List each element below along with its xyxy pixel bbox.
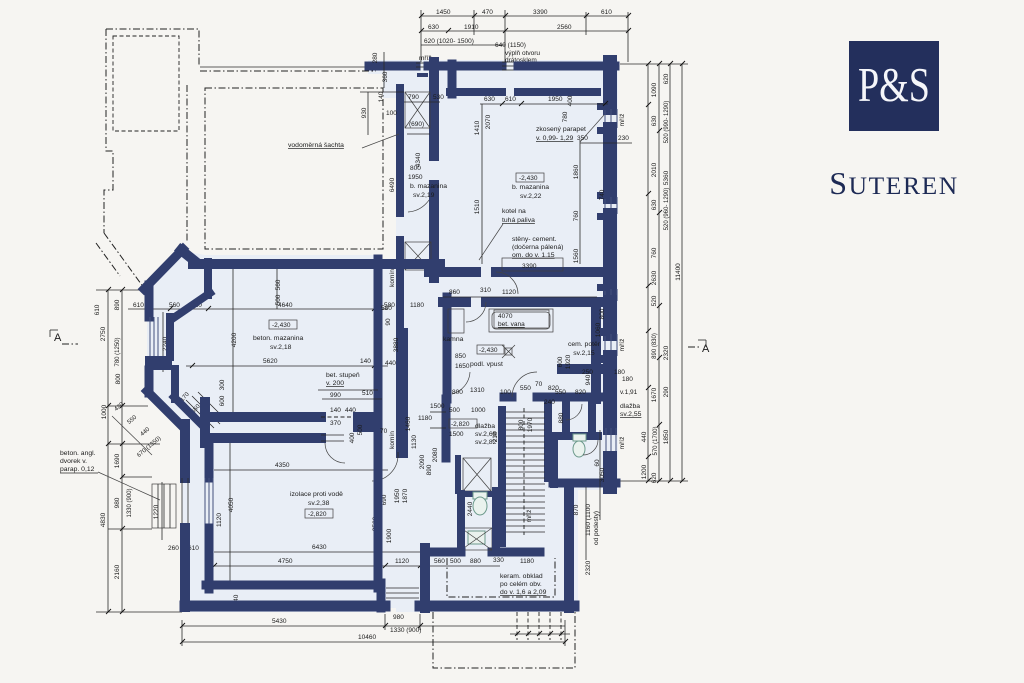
svg-text:2070: 2070 — [485, 114, 492, 129]
svg-text:500: 500 — [275, 294, 282, 305]
svg-text:1920: 1920 — [565, 354, 572, 369]
svg-text:820: 820 — [575, 389, 586, 396]
svg-text:850: 850 — [455, 353, 466, 360]
svg-text:800: 800 — [452, 389, 463, 396]
svg-text:890: 890 — [426, 464, 433, 475]
svg-text:1650: 1650 — [455, 363, 470, 370]
svg-text:beton. angl.: beton. angl. — [60, 450, 96, 457]
svg-text:800: 800 — [518, 419, 525, 430]
svg-text:parap. 0,12: parap. 0,12 — [60, 466, 95, 473]
svg-text:5620: 5620 — [263, 358, 278, 365]
svg-text:4350: 4350 — [275, 462, 290, 469]
svg-text:1180: 1180 — [410, 302, 424, 309]
svg-text:sv.2,19: sv.2,19 — [413, 192, 435, 199]
svg-text:140: 140 — [330, 407, 341, 414]
svg-text:1120: 1120 — [502, 289, 516, 296]
svg-text:komín: komín — [389, 269, 396, 287]
svg-text:140: 140 — [360, 358, 371, 365]
svg-text:2560: 2560 — [557, 24, 572, 31]
svg-text:-2,820: -2,820 — [308, 511, 327, 518]
svg-text:4070: 4070 — [498, 313, 513, 320]
svg-text:610: 610 — [94, 304, 101, 315]
svg-text:sv.2,15: sv.2,15 — [573, 350, 595, 357]
svg-text:880: 880 — [558, 412, 565, 423]
svg-text:1310: 1310 — [470, 387, 485, 394]
svg-text:90: 90 — [385, 318, 392, 326]
svg-text:1900: 1900 — [386, 528, 393, 543]
svg-text:610: 610 — [601, 9, 612, 16]
svg-text:mříž: mříž — [619, 114, 626, 127]
svg-text:sv.2,82: sv.2,82 — [475, 439, 497, 446]
svg-text:2090: 2090 — [419, 454, 426, 469]
svg-text:280: 280 — [372, 52, 379, 63]
svg-text:560: 560 — [434, 558, 445, 565]
svg-text:beton. mazanina: beton. mazanina — [253, 335, 303, 342]
svg-text:440: 440 — [385, 360, 396, 367]
svg-text:400: 400 — [349, 432, 356, 443]
svg-text:podl. vpust: podl. vpust — [470, 361, 503, 368]
svg-text:2750: 2750 — [100, 326, 107, 341]
svg-text:od podesty): od podesty) — [593, 511, 600, 545]
svg-text:500: 500 — [450, 558, 461, 565]
svg-text:2010: 2010 — [651, 162, 658, 177]
svg-text:1200: 1200 — [641, 464, 648, 479]
svg-text:keram. obklad: keram. obklad — [500, 573, 543, 580]
svg-text:980: 980 — [114, 497, 121, 508]
svg-text:1500: 1500 — [449, 431, 464, 438]
svg-text:560: 560 — [169, 302, 180, 309]
svg-text:240: 240 — [544, 399, 555, 406]
svg-text:600: 600 — [219, 395, 226, 406]
svg-text:310: 310 — [480, 287, 491, 294]
svg-text:po celém obv.: po celém obv. — [500, 581, 542, 588]
svg-text:b. mazanina: b. mazanina — [512, 184, 549, 191]
svg-text:550: 550 — [520, 385, 531, 392]
svg-text:880: 880 — [470, 558, 481, 565]
svg-text:4050: 4050 — [228, 497, 235, 512]
svg-text:1410: 1410 — [474, 120, 481, 135]
svg-text:2080: 2080 — [432, 447, 439, 462]
svg-text:-2,820: -2,820 — [451, 421, 470, 428]
svg-text:800: 800 — [115, 373, 122, 384]
svg-text:1910: 1910 — [464, 24, 479, 31]
svg-text:820: 820 — [548, 385, 559, 392]
svg-text:630: 630 — [428, 24, 439, 31]
svg-text:560: 560 — [275, 279, 282, 290]
svg-text:500: 500 — [357, 424, 364, 435]
svg-text:1690: 1690 — [114, 453, 121, 468]
svg-text:740: 740 — [599, 189, 606, 200]
svg-text:370: 370 — [330, 420, 341, 427]
svg-text:180: 180 — [622, 376, 633, 383]
svg-text:580: 580 — [381, 305, 392, 312]
svg-text:360: 360 — [382, 71, 389, 82]
svg-text:sv.2,38: sv.2,38 — [308, 500, 330, 507]
svg-text:530: 530 — [433, 94, 444, 101]
svg-text:230: 230 — [618, 135, 629, 142]
svg-text:P&S: P&S — [858, 57, 930, 112]
svg-text:100: 100 — [500, 389, 511, 396]
svg-text:v. 0,99- 1,29: v. 0,99- 1,29 — [536, 135, 573, 142]
svg-text:1950: 1950 — [548, 96, 563, 103]
svg-text:5360: 5360 — [663, 170, 670, 185]
svg-text:tuhá paliva: tuhá paliva — [502, 217, 535, 224]
svg-text:290: 290 — [663, 386, 670, 397]
svg-text:500: 500 — [449, 407, 460, 414]
svg-text:-2,430: -2,430 — [519, 175, 538, 182]
svg-text:620 (1020- 1500): 620 (1020- 1500) — [424, 38, 474, 45]
svg-text:610: 610 — [133, 302, 144, 309]
svg-text:1500: 1500 — [430, 403, 445, 410]
svg-text:komín: komín — [389, 431, 396, 449]
svg-text:1330 (900): 1330 (900) — [390, 627, 421, 634]
svg-text:1850: 1850 — [663, 429, 670, 444]
svg-text:sv.2,55: sv.2,55 — [620, 411, 642, 418]
svg-text:990: 990 — [330, 392, 341, 399]
svg-text:930: 930 — [361, 107, 368, 118]
svg-text:dlažba: dlažba — [475, 423, 495, 430]
svg-text:1120: 1120 — [395, 558, 409, 565]
svg-text:1560: 1560 — [573, 248, 580, 263]
svg-text:3390: 3390 — [522, 263, 537, 270]
svg-text:-2,430: -2,430 — [479, 347, 498, 354]
svg-text:870: 870 — [573, 504, 580, 515]
svg-text:630: 630 — [651, 115, 658, 126]
svg-text:980: 980 — [393, 614, 404, 621]
svg-text:izolace proti vodě: izolace proti vodě — [290, 491, 343, 498]
svg-text:1130: 1130 — [411, 435, 418, 449]
svg-text:4830: 4830 — [100, 512, 107, 527]
svg-text:3880: 3880 — [393, 337, 400, 352]
svg-text:1510: 1510 — [474, 199, 481, 214]
svg-text:520 (960- 1290): 520 (960- 1290) — [664, 188, 670, 231]
svg-text:70: 70 — [380, 428, 388, 435]
svg-text:940: 940 — [585, 374, 592, 385]
svg-text:100: 100 — [386, 110, 397, 117]
svg-text:140: 140 — [378, 91, 385, 102]
svg-text:5430: 5430 — [272, 618, 287, 625]
svg-text:1000: 1000 — [101, 404, 108, 419]
svg-text:640 (1150): 640 (1150) — [495, 42, 526, 49]
svg-text:630: 630 — [484, 96, 495, 103]
svg-text:780: 780 — [562, 111, 569, 122]
svg-text:1180: 1180 — [418, 415, 432, 422]
svg-text:1670: 1670 — [651, 387, 658, 402]
svg-text:cem. potěr: cem. potěr — [568, 341, 601, 348]
svg-text:760: 760 — [573, 210, 580, 221]
svg-text:890 (830): 890 (830) — [652, 333, 658, 359]
svg-text:2320: 2320 — [585, 560, 592, 575]
svg-text:760: 760 — [651, 247, 658, 258]
svg-text:bet. vana: bet. vana — [498, 321, 525, 328]
svg-text:b. mazanina: b. mazanina — [410, 183, 447, 190]
svg-text:350: 350 — [577, 135, 588, 142]
svg-text:kamna: kamna — [443, 336, 464, 343]
svg-text:520: 520 — [651, 295, 658, 306]
svg-text:510: 510 — [362, 390, 373, 397]
svg-text:(690): (690) — [409, 121, 424, 128]
svg-text:440: 440 — [641, 431, 648, 442]
svg-text:2630: 2630 — [651, 270, 658, 285]
svg-text:1090: 1090 — [651, 82, 658, 97]
svg-text:1950: 1950 — [394, 488, 401, 503]
svg-text:A: A — [54, 332, 62, 344]
svg-text:11400: 11400 — [675, 263, 682, 281]
svg-text:dvorek v.: dvorek v. — [60, 458, 87, 465]
svg-text:780 (1250): 780 (1250) — [115, 337, 121, 366]
svg-text:mříž: mříž — [619, 339, 626, 352]
svg-text:v. 200: v. 200 — [326, 380, 344, 387]
svg-text:800: 800 — [599, 308, 606, 319]
svg-text:440: 440 — [345, 407, 356, 414]
svg-text:1950: 1950 — [408, 174, 423, 181]
svg-text:výplň otvoru: výplň otvoru — [505, 50, 540, 57]
svg-text:kotel na: kotel na — [502, 208, 526, 215]
svg-text:stěny- cement.: stěny- cement. — [512, 236, 557, 243]
svg-text:630: 630 — [651, 199, 658, 210]
svg-text:1180: 1180 — [520, 558, 534, 565]
svg-text:520 (990- 1290): 520 (990- 1290) — [664, 101, 670, 144]
svg-text:620: 620 — [651, 472, 658, 483]
svg-text:-2,430: -2,430 — [272, 322, 291, 329]
svg-text:1450: 1450 — [436, 9, 451, 16]
svg-text:vodoměrná šachta: vodoměrná šachta — [288, 142, 344, 149]
svg-text:1860: 1860 — [573, 164, 580, 179]
svg-text:1000: 1000 — [471, 407, 486, 414]
svg-text:2320: 2320 — [663, 345, 670, 360]
svg-text:1330 (900): 1330 (900) — [127, 488, 133, 517]
svg-text:330: 330 — [493, 557, 504, 564]
svg-text:SUTEREN: SUTEREN — [829, 165, 959, 201]
svg-text:790: 790 — [408, 94, 419, 101]
svg-text:1060: 1060 — [595, 322, 602, 337]
svg-text:1970: 1970 — [527, 417, 534, 432]
svg-text:sv.2,18: sv.2,18 — [270, 344, 292, 351]
svg-text:4750: 4750 — [278, 558, 293, 565]
svg-text:1870: 1870 — [402, 488, 409, 503]
svg-text:800: 800 — [410, 165, 421, 172]
svg-text:4200: 4200 — [231, 332, 238, 347]
svg-text:570 (1700): 570 (1700) — [653, 426, 659, 455]
svg-text:610: 610 — [505, 96, 516, 103]
svg-text:1120: 1120 — [216, 513, 223, 527]
svg-text:dlažba: dlažba — [620, 403, 640, 410]
svg-text:1220: 1220 — [153, 504, 160, 519]
svg-text:300: 300 — [219, 379, 226, 390]
svg-text:mříž: mříž — [526, 510, 533, 523]
svg-text:v.1,91: v.1,91 — [620, 389, 638, 396]
svg-text:bet. stupeň: bet. stupeň — [326, 372, 360, 379]
svg-text:3390: 3390 — [533, 9, 548, 16]
svg-text:860: 860 — [449, 289, 460, 296]
svg-text:260: 260 — [168, 545, 179, 552]
svg-text:sv.2,22: sv.2,22 — [520, 193, 542, 200]
svg-text:zkosený parapet: zkosený parapet — [536, 126, 586, 133]
svg-text:620: 620 — [663, 73, 670, 84]
svg-text:6490: 6490 — [389, 177, 396, 192]
svg-text:180: 180 — [614, 369, 625, 376]
svg-text:mříž: mříž — [619, 437, 626, 450]
svg-text:10460: 10460 — [358, 634, 376, 641]
svg-text:890: 890 — [114, 299, 121, 310]
svg-text:470: 470 — [482, 9, 493, 16]
svg-text:do v. 1,6 a 2,09: do v. 1,6 a 2,09 — [500, 589, 547, 596]
svg-text:70: 70 — [535, 381, 543, 388]
svg-text:600: 600 — [557, 356, 564, 367]
svg-text:(dočerna pálená): (dočerna pálená) — [512, 244, 563, 251]
svg-text:2160: 2160 — [114, 564, 121, 579]
svg-text:6430: 6430 — [312, 544, 327, 551]
svg-text:400: 400 — [567, 95, 574, 106]
svg-text:sv.2,65: sv.2,65 — [475, 431, 497, 438]
svg-text:1460: 1460 — [405, 416, 412, 431]
